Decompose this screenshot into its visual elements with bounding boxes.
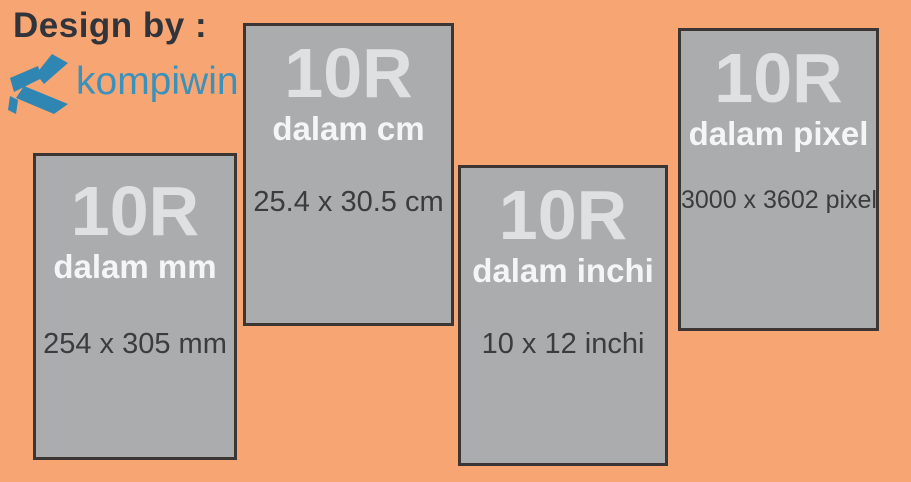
- size-title: 10R: [36, 176, 234, 246]
- kompiwin-logo-icon: [8, 54, 70, 114]
- size-value: 25.4 x 30.5 cm: [246, 186, 451, 219]
- size-value: 10 x 12 inchi: [461, 328, 665, 361]
- credit-label: Design by :: [13, 6, 207, 46]
- brand-name: kompiwin: [76, 60, 239, 104]
- size-card-pixel: 10R dalam pixel 3000 x 3602 pixel: [678, 28, 879, 331]
- size-title: 10R: [681, 43, 876, 113]
- size-card-mm: 10R dalam mm 254 x 305 mm: [33, 153, 237, 460]
- size-unit-label: dalam pixel: [681, 115, 876, 153]
- size-card-cm: 10R dalam cm 25.4 x 30.5 cm: [243, 23, 454, 326]
- size-unit-label: dalam inchi: [461, 252, 665, 290]
- infographic-canvas: Design by : kompiwin 10R dalam mm 254 x …: [0, 0, 911, 482]
- size-title: 10R: [246, 38, 451, 108]
- size-card-inchi: 10R dalam inchi 10 x 12 inchi: [458, 165, 668, 466]
- size-value: 254 x 305 mm: [36, 328, 234, 361]
- size-title: 10R: [461, 180, 665, 250]
- size-unit-label: dalam cm: [246, 110, 451, 148]
- size-unit-label: dalam mm: [36, 248, 234, 286]
- size-value: 3000 x 3602 pixel: [681, 186, 876, 215]
